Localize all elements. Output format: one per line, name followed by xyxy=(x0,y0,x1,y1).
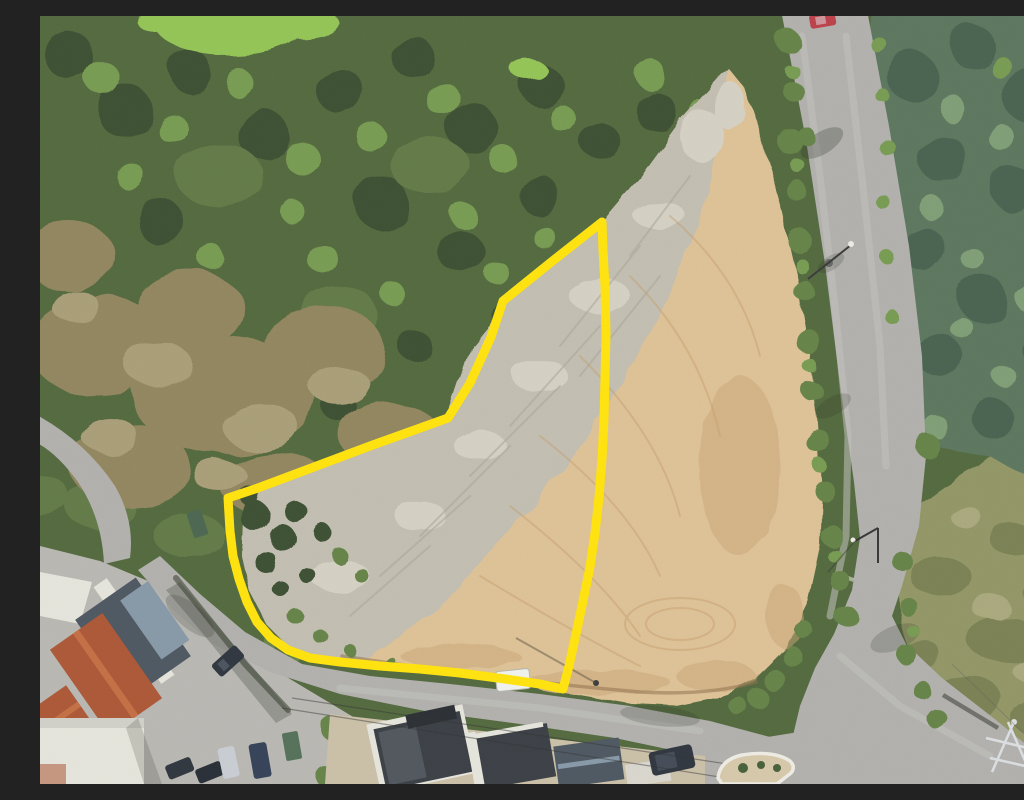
photo-grain xyxy=(40,16,1024,784)
aerial-photo xyxy=(40,16,1024,784)
